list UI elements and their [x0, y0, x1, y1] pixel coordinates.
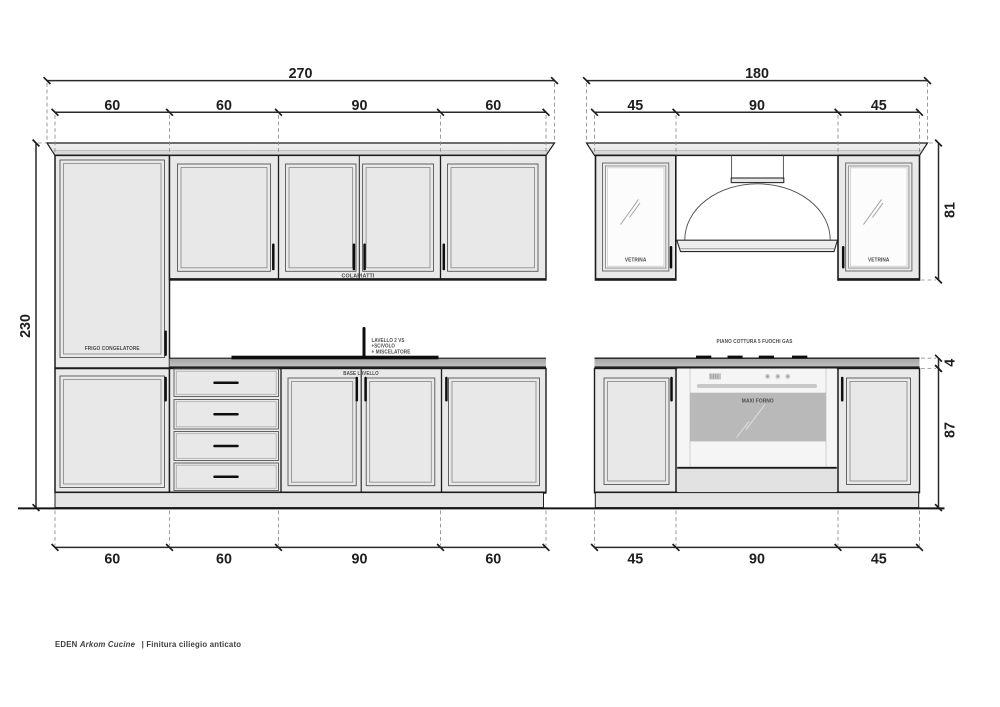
svg-text:VETRINA: VETRINA — [868, 258, 890, 264]
svg-text:90: 90 — [749, 551, 765, 567]
svg-text:60: 60 — [216, 98, 232, 114]
svg-text:60: 60 — [216, 551, 232, 567]
svg-text:45: 45 — [627, 98, 643, 114]
svg-text:COLAPIATTI: COLAPIATTI — [342, 273, 375, 279]
svg-text:60: 60 — [485, 551, 501, 567]
svg-text:45: 45 — [627, 551, 643, 567]
svg-text:87: 87 — [943, 422, 959, 438]
svg-text:MAXI FORNO: MAXI FORNO — [742, 399, 774, 405]
svg-text:VETRINA: VETRINA — [625, 258, 647, 264]
svg-text:90: 90 — [352, 551, 368, 567]
svg-text:FRIGO CONGELATORE: FRIGO CONGELATORE — [85, 346, 140, 352]
svg-text:+ MISCELATORE: + MISCELATORE — [372, 349, 411, 355]
svg-text:45: 45 — [871, 551, 887, 567]
svg-text:60: 60 — [485, 98, 501, 114]
svg-text:230: 230 — [18, 314, 34, 338]
svg-text:81: 81 — [943, 202, 959, 218]
svg-text:270: 270 — [289, 66, 313, 82]
svg-text:BASE LAVELLO: BASE LAVELLO — [343, 371, 379, 377]
svg-text:60: 60 — [104, 551, 120, 567]
svg-text:60: 60 — [104, 98, 120, 114]
svg-text:180: 180 — [745, 66, 769, 82]
svg-text:45: 45 — [871, 98, 887, 114]
svg-text:4: 4 — [943, 359, 959, 367]
svg-text:90: 90 — [352, 98, 368, 114]
svg-text:PIANO COTTURA 5 FUOCHI GAS: PIANO COTTURA 5 FUOCHI GAS — [717, 339, 793, 345]
svg-text:EDEN Arkom Cucine | Finitura: EDEN Arkom Cucine | Finitura ciliegio an… — [55, 640, 241, 649]
svg-text:90: 90 — [749, 98, 765, 114]
